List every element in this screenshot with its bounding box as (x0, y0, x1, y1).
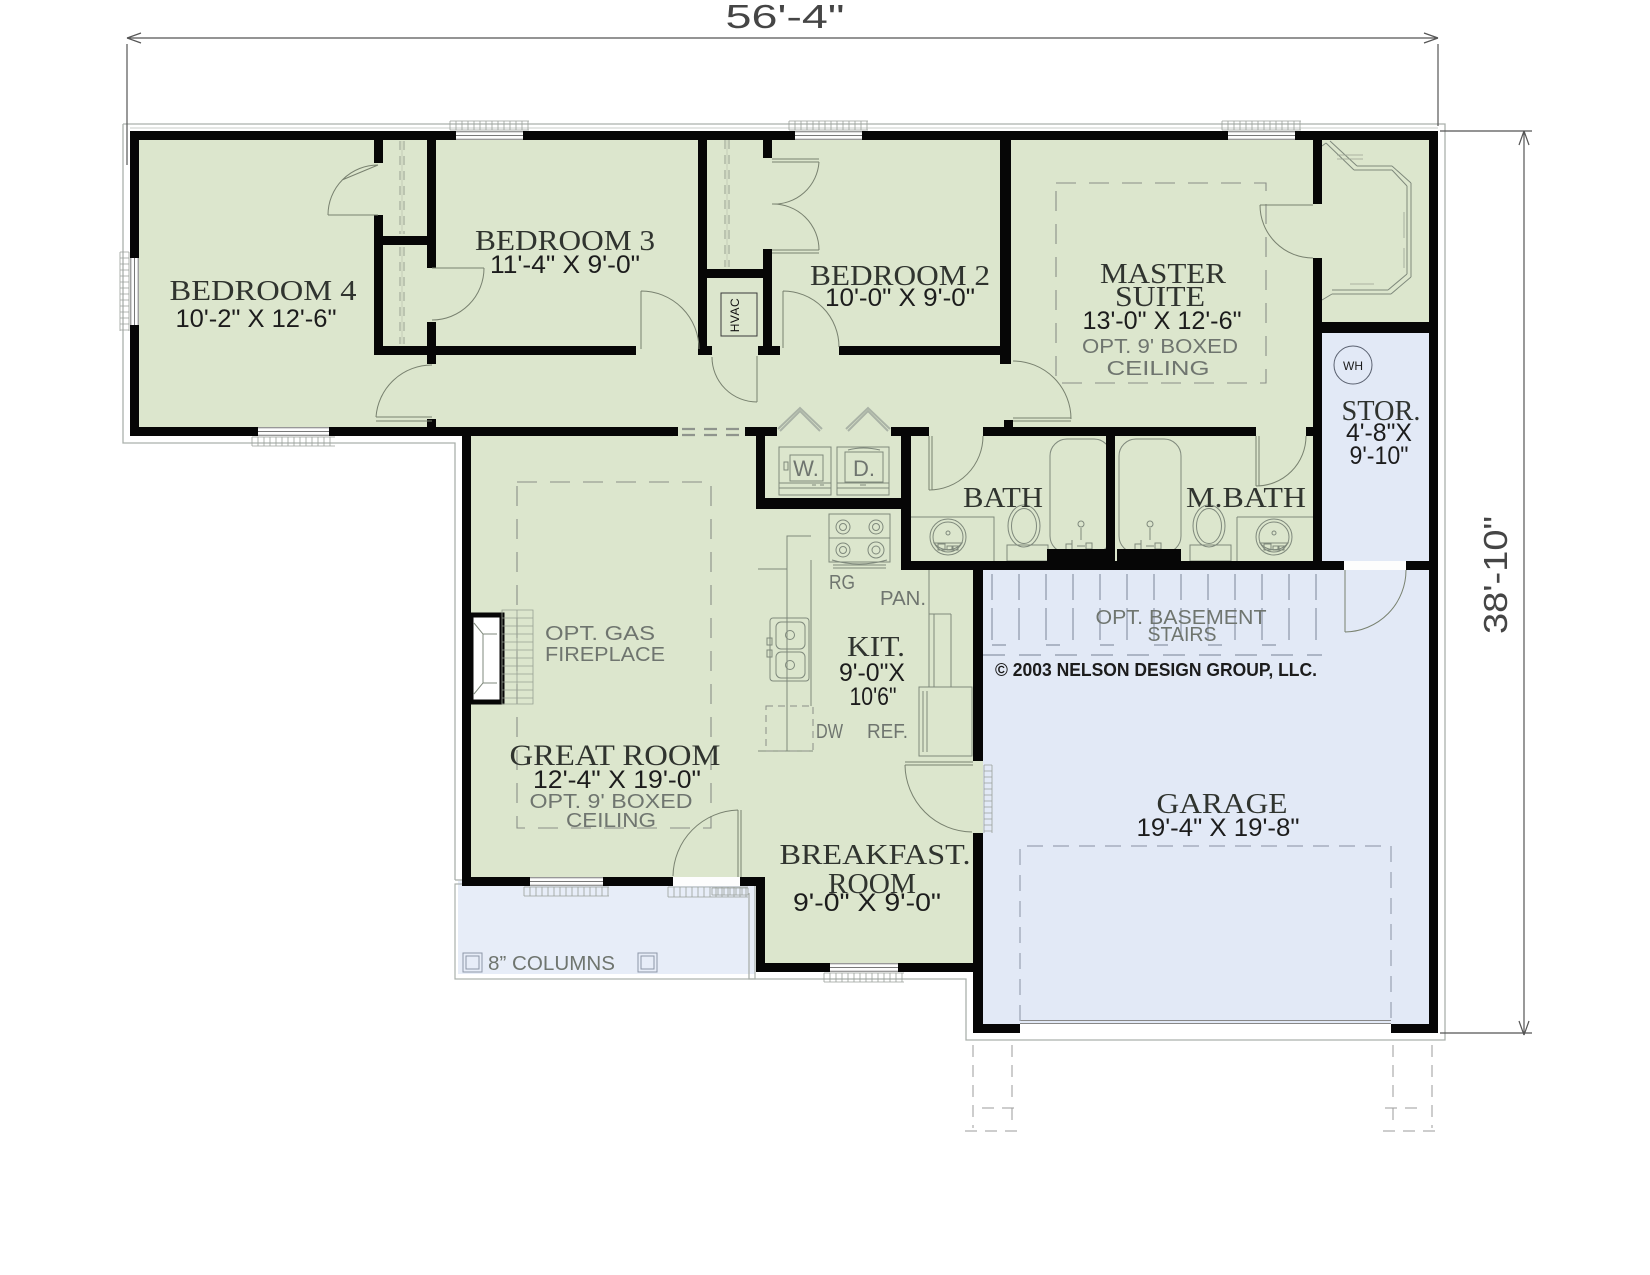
svg-text:W.: W. (793, 456, 819, 481)
svg-text:10'6": 10'6" (850, 683, 897, 711)
svg-text:12'-4" X 19'-0": 12'-4" X 19'-0" (533, 766, 701, 794)
svg-text:M.BATH: M.BATH (1186, 483, 1306, 514)
svg-text:9'-10": 9'-10" (1350, 442, 1409, 470)
svg-text:HVAC: HVAC (728, 298, 742, 332)
svg-text:11'-4" X 9'-0": 11'-4" X 9'-0" (490, 251, 640, 279)
svg-text:OPT. 9' BOXED: OPT. 9' BOXED (1082, 336, 1238, 358)
svg-text:RG: RG (829, 572, 855, 594)
svg-text:STAIRS: STAIRS (1148, 624, 1217, 646)
svg-text:PAN.: PAN. (880, 588, 926, 610)
svg-text:© 2003 NELSON DESIGN GROUP, LL: © 2003 NELSON DESIGN GROUP, LLC. (995, 660, 1317, 680)
svg-text:10'-2" X 12'-6": 10'-2" X 12'-6" (176, 305, 337, 333)
svg-text:DW: DW (816, 721, 843, 743)
svg-text:38'-10": 38'-10" (1477, 516, 1514, 634)
svg-text:BREAKFAST.: BREAKFAST. (780, 840, 971, 871)
svg-text:CEILING: CEILING (1107, 358, 1210, 380)
svg-text:13'-0" X 12'-6": 13'-0" X 12'-6" (1083, 307, 1242, 335)
svg-text:REF.: REF. (867, 721, 908, 743)
svg-text:9'-0" X 9'-0": 9'-0" X 9'-0" (793, 889, 941, 917)
svg-text:OPT. GAS: OPT. GAS (545, 623, 655, 645)
svg-text:BEDROOM 4: BEDROOM 4 (170, 275, 358, 307)
svg-text:19'-4" X 19'-8": 19'-4" X 19'-8" (1137, 814, 1300, 842)
svg-text:D.: D. (853, 456, 875, 481)
svg-text:56'-4": 56'-4" (726, 0, 845, 35)
svg-text:BATH: BATH (963, 483, 1043, 514)
svg-text:CEILING: CEILING (566, 810, 656, 832)
svg-text:FIREPLACE: FIREPLACE (545, 644, 665, 666)
svg-text:10'-0" X 9'-0": 10'-0" X 9'-0" (825, 284, 975, 312)
svg-text:8” COLUMNS: 8” COLUMNS (488, 953, 615, 975)
svg-text:WH: WH (1343, 359, 1363, 373)
